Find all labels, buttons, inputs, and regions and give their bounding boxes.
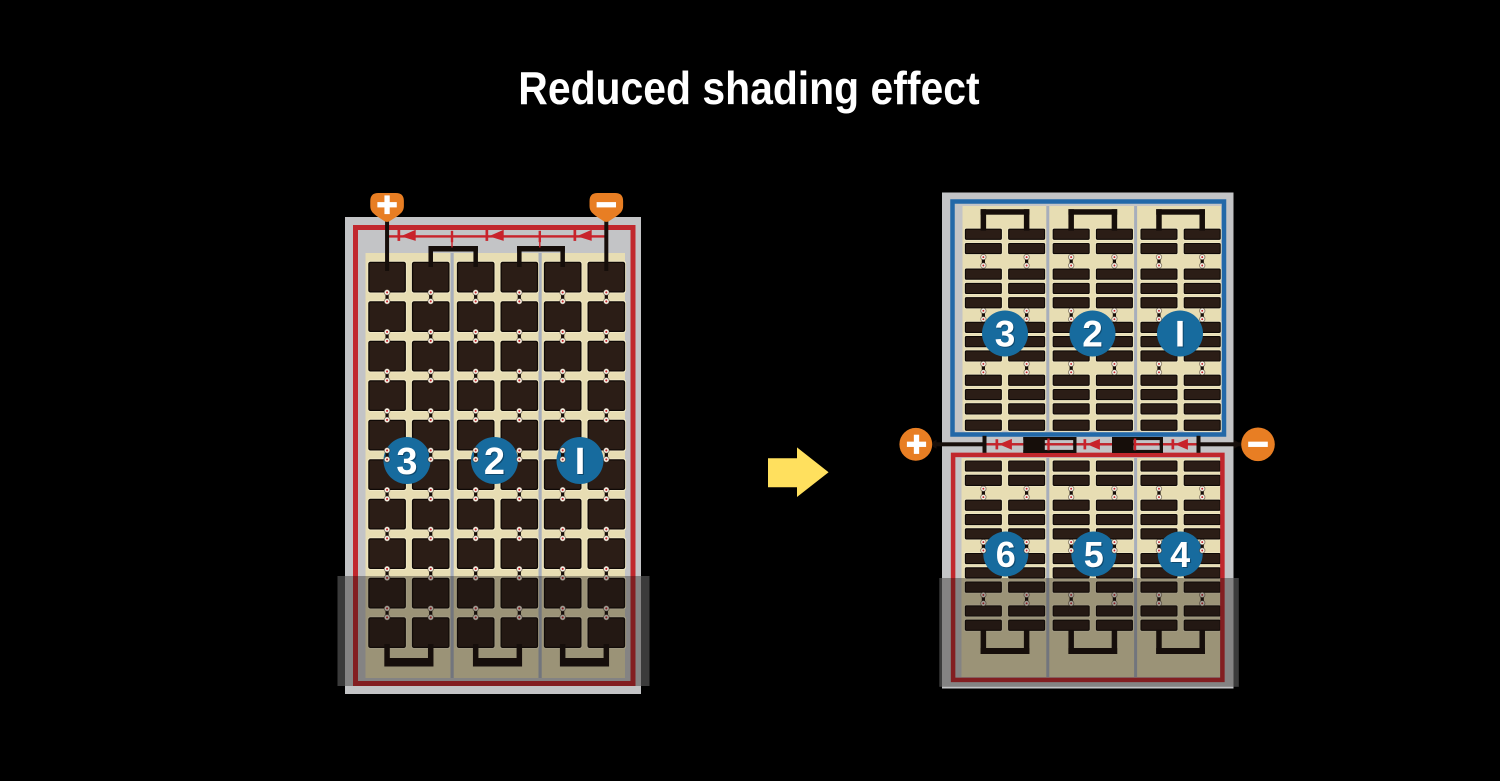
svg-text:2: 2	[1082, 314, 1103, 355]
svg-text:3: 3	[995, 314, 1016, 355]
svg-text:4: 4	[1170, 534, 1190, 575]
svg-text:I: I	[1175, 314, 1185, 355]
svg-text:6: 6	[996, 534, 1016, 575]
svg-text:I: I	[575, 441, 586, 483]
svg-text:5: 5	[1084, 534, 1104, 575]
svg-text:3: 3	[396, 441, 417, 483]
svg-text:2: 2	[484, 441, 505, 483]
